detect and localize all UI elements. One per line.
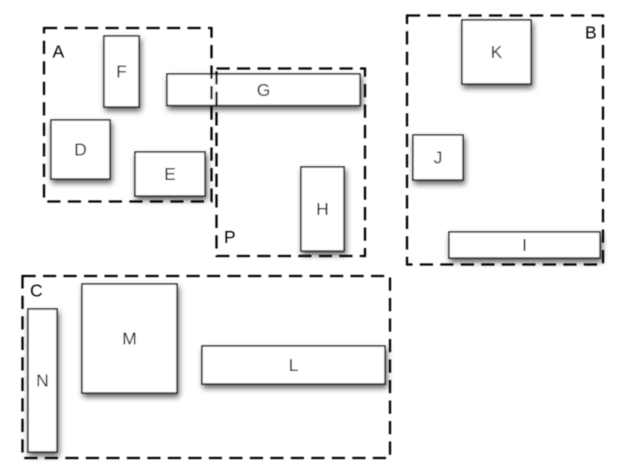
svg-text:L: L (289, 355, 299, 375)
svg-text:J: J (434, 148, 443, 168)
svg-text:G: G (257, 80, 271, 100)
svg-text:N: N (36, 371, 49, 391)
svg-text:F: F (116, 62, 127, 82)
svg-text:K: K (491, 42, 503, 62)
svg-text:E: E (164, 164, 176, 184)
svg-text:D: D (74, 140, 87, 160)
svg-text:B: B (585, 23, 597, 43)
svg-text:P: P (224, 227, 236, 247)
svg-text:M: M (122, 329, 137, 349)
svg-text:H: H (316, 199, 329, 219)
svg-text:A: A (53, 42, 65, 62)
svg-text:I: I (522, 235, 527, 255)
svg-text:C: C (30, 281, 43, 301)
